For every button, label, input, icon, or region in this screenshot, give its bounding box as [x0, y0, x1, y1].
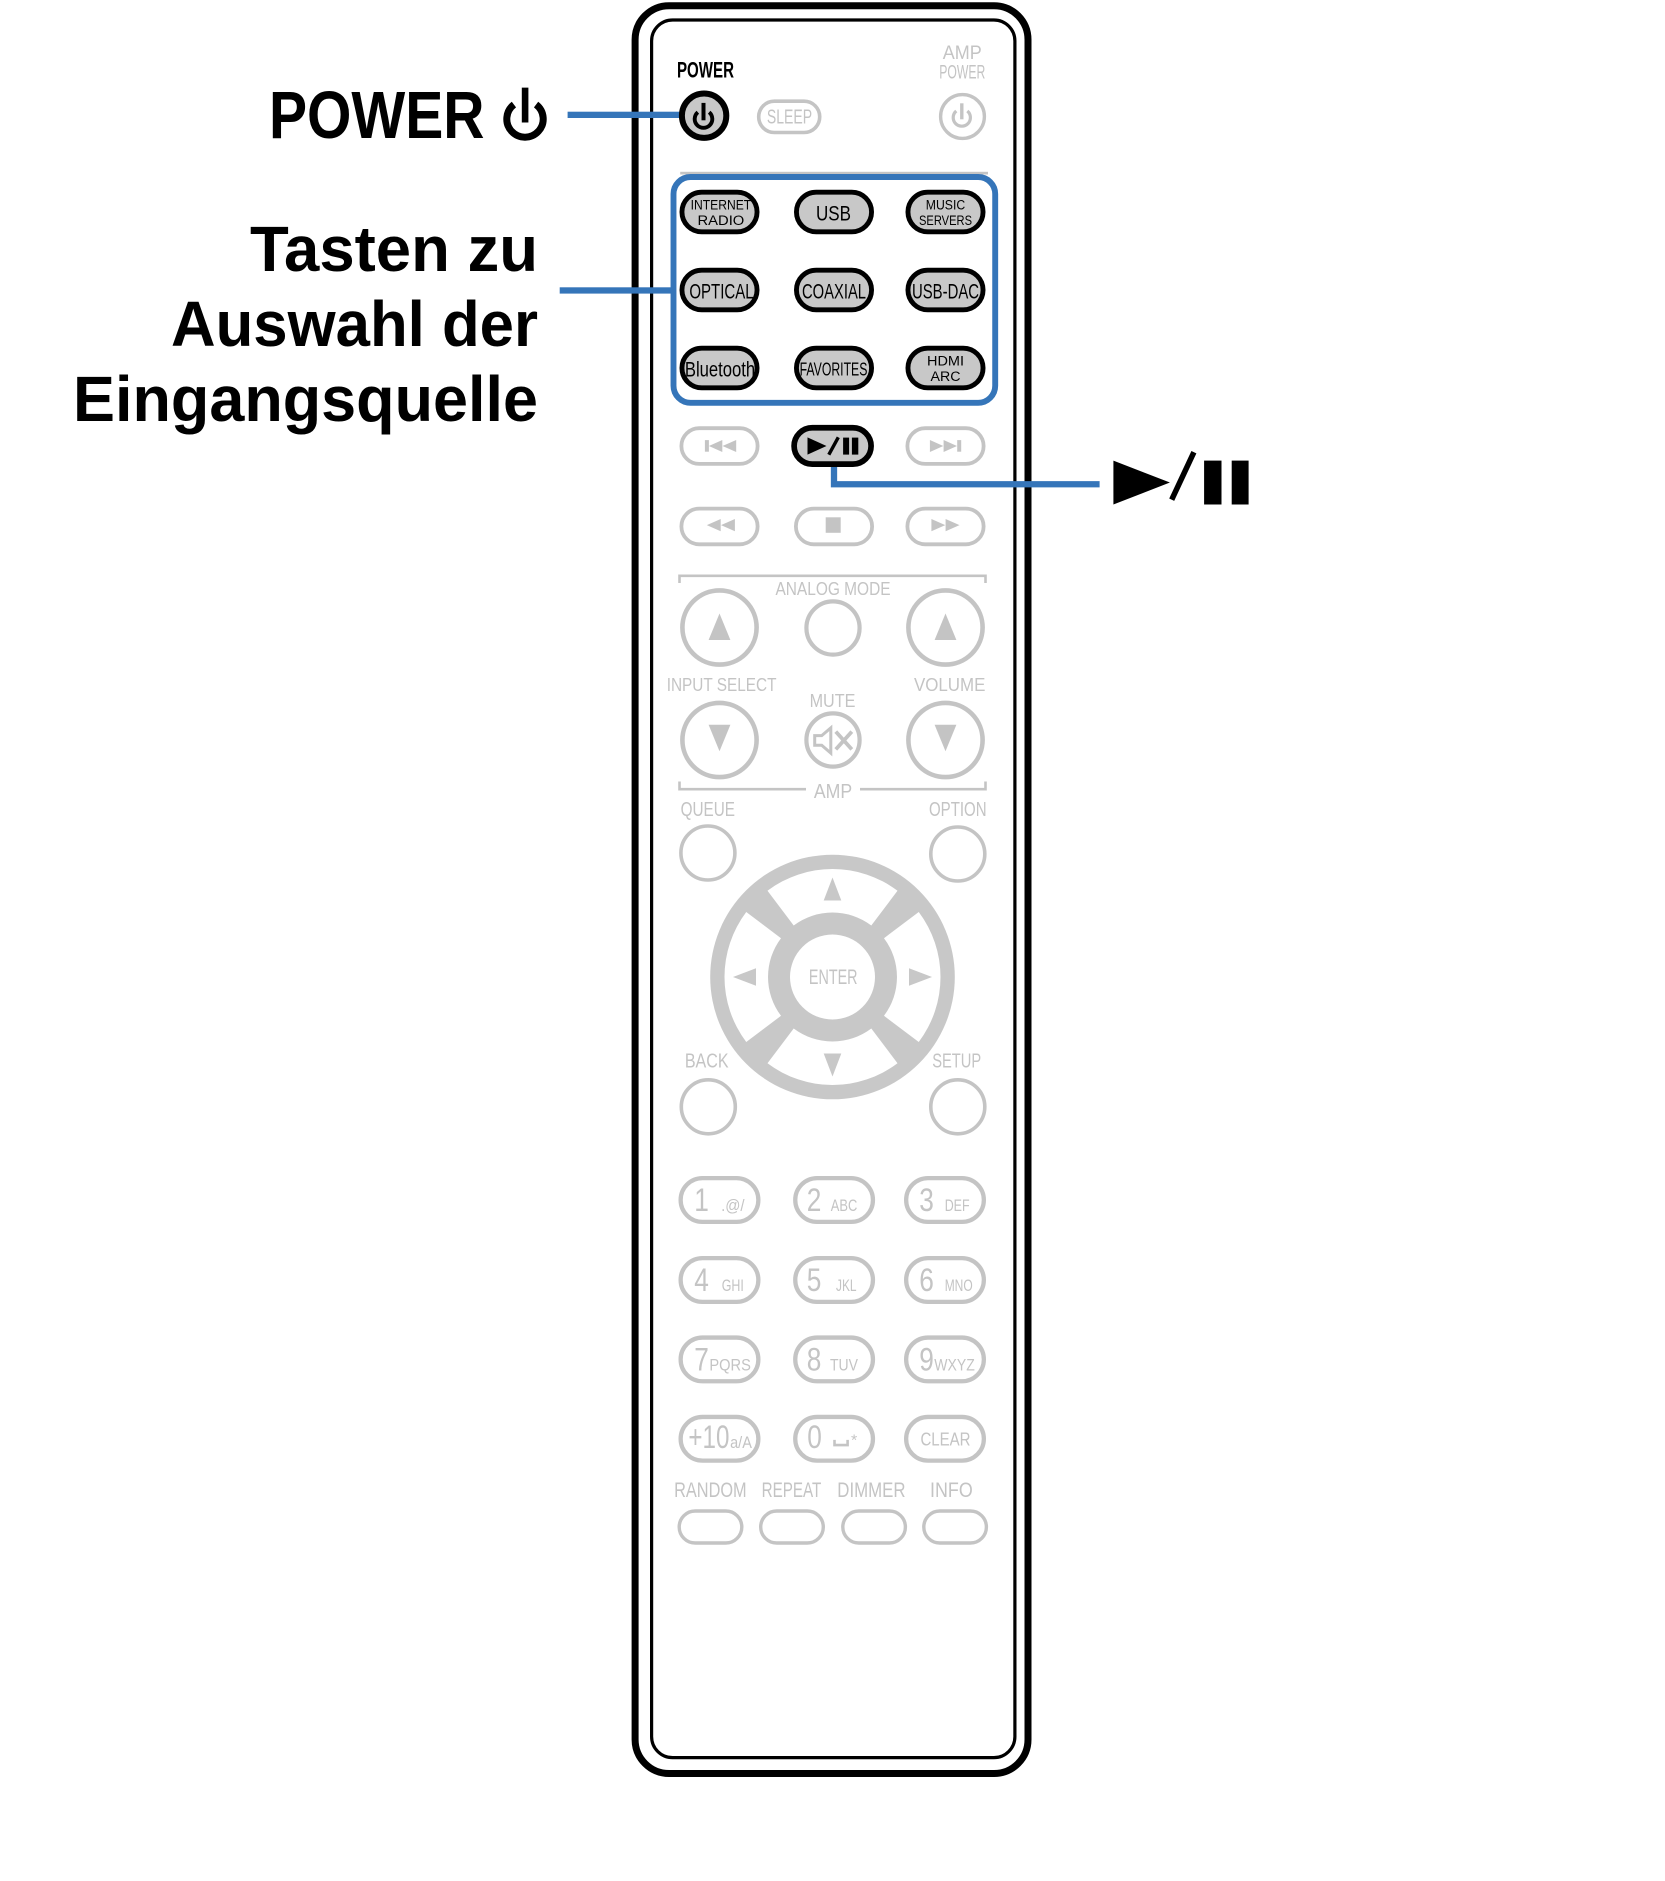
svg-text:2: 2 [807, 1182, 822, 1218]
svg-text:6: 6 [919, 1262, 934, 1298]
svg-text:8: 8 [807, 1341, 822, 1377]
svg-text:FAVORITES: FAVORITES [800, 358, 868, 379]
svg-text:WXYZ: WXYZ [934, 1356, 975, 1374]
svg-text:Auswahl der: Auswahl der [171, 288, 538, 360]
svg-text:9: 9 [919, 1341, 934, 1377]
svg-text:MNO: MNO [945, 1277, 973, 1295]
svg-text:USB-DAC: USB-DAC [912, 279, 979, 303]
svg-text:Bluetooth: Bluetooth [685, 357, 755, 381]
svg-text:Tasten zu: Tasten zu [250, 213, 538, 285]
svg-text:AMP: AMP [814, 781, 852, 803]
svg-text:HDMI: HDMI [927, 353, 964, 369]
svg-text:POWER: POWER [939, 62, 985, 84]
svg-text:4: 4 [694, 1262, 709, 1298]
svg-text:INTERNET: INTERNET [691, 197, 752, 213]
svg-text:DEF: DEF [945, 1197, 970, 1215]
svg-text:5: 5 [807, 1262, 822, 1298]
svg-text:USB: USB [816, 202, 851, 226]
svg-text:ENTER: ENTER [809, 966, 858, 989]
svg-text:OPTION: OPTION [929, 798, 987, 821]
svg-text:PQRS: PQRS [709, 1356, 751, 1374]
svg-text:SETUP: SETUP [932, 1049, 981, 1072]
svg-text:.@/: .@/ [721, 1197, 745, 1215]
svg-text:ARC: ARC [931, 368, 961, 384]
svg-text:RADIO: RADIO [698, 212, 745, 228]
svg-text:a/A: a/A [730, 1433, 752, 1452]
svg-text:0: 0 [807, 1419, 822, 1455]
svg-text:7: 7 [694, 1341, 709, 1377]
svg-text:GHI: GHI [722, 1277, 744, 1295]
svg-text:TUV: TUV [830, 1356, 858, 1374]
svg-text:JKL: JKL [836, 1277, 857, 1295]
svg-text:1: 1 [694, 1182, 709, 1218]
svg-text:*: * [851, 1433, 857, 1450]
svg-text:BACK: BACK [685, 1049, 729, 1072]
svg-text:INPUT SELECT: INPUT SELECT [667, 674, 777, 695]
svg-text:QUEUE: QUEUE [681, 798, 735, 821]
svg-text:SERVERS: SERVERS [919, 212, 972, 228]
svg-text:INFO: INFO [930, 1479, 973, 1502]
svg-text:OPTICAL: OPTICAL [689, 279, 753, 303]
svg-text:CLEAR: CLEAR [920, 1429, 970, 1450]
svg-text:ABC: ABC [831, 1197, 858, 1215]
svg-text:REPEAT: REPEAT [762, 1479, 822, 1502]
svg-text:Eingangsquelle: Eingangsquelle [73, 363, 538, 435]
svg-text:POWER: POWER [677, 58, 734, 83]
svg-text:ANALOG MODE: ANALOG MODE [775, 578, 890, 599]
svg-text:DIMMER: DIMMER [837, 1479, 905, 1502]
svg-text:POWER: POWER [269, 78, 485, 153]
svg-text:MUTE: MUTE [810, 690, 856, 711]
svg-text:SLEEP: SLEEP [767, 107, 812, 129]
svg-text:RANDOM: RANDOM [674, 1479, 747, 1502]
svg-text:MUSIC: MUSIC [926, 197, 965, 213]
svg-text:+10: +10 [688, 1419, 729, 1455]
svg-text:VOLUME: VOLUME [914, 674, 986, 695]
svg-text:3: 3 [919, 1182, 934, 1218]
svg-text:COAXIAL: COAXIAL [802, 279, 866, 303]
